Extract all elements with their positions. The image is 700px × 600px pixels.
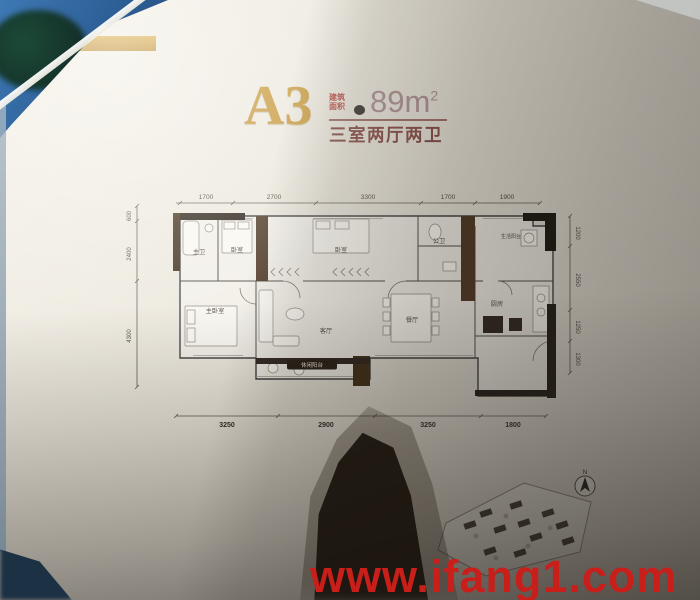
- floor-plan-drawing: 1700 2700 3300 1700 1900 3250 2900 3250 …: [123, 186, 583, 456]
- svg-text:600: 600: [127, 210, 133, 221]
- background-left-edge: [0, 104, 6, 552]
- dimension-labels-bottom: 3250 2900 3250 1800: [219, 422, 521, 429]
- room-label-living: 客厅: [320, 327, 332, 335]
- svg-text:3250: 3250: [219, 422, 235, 429]
- svg-text:1200: 1200: [574, 226, 580, 240]
- svg-text:4300: 4300: [127, 329, 133, 343]
- room-label-master-bedroom: 主卧室: [206, 307, 225, 315]
- svg-text:1900: 1900: [500, 194, 515, 201]
- svg-text:3250: 3250: [420, 422, 436, 429]
- room-label-bedroom-a: 卧室: [231, 246, 243, 254]
- area-value: 89m2: [370, 86, 438, 117]
- svg-text:1700: 1700: [199, 194, 214, 201]
- area-number: 89m: [370, 84, 430, 119]
- leisure-balcony-tag: 休闲阳台: [287, 360, 337, 370]
- svg-text:3300: 3300: [361, 194, 376, 201]
- svg-text:2900: 2900: [318, 422, 334, 429]
- svg-text:2700: 2700: [267, 194, 282, 201]
- plan-code-title: A3: [244, 78, 312, 134]
- room-label-kitchen: 厨房: [491, 300, 503, 308]
- room-label-second-bath: 公卫: [433, 238, 445, 245]
- svg-text:1250: 1250: [574, 320, 580, 334]
- floorplan-photo: A3 建筑 面积 89m2 三室两厅两卫 1700 2700: [0, 0, 700, 600]
- north-arrow-icon: N: [575, 469, 595, 496]
- room-label-bedroom-b: 卧室: [335, 246, 347, 254]
- background-bottom-left: [0, 545, 72, 600]
- room-label-master-bath: 主卫: [193, 248, 205, 256]
- watermark-url: www.ifang1.com: [310, 551, 677, 600]
- area-caption-line2: 面积: [329, 103, 345, 112]
- north-label: N: [583, 469, 588, 476]
- svg-text:2400: 2400: [127, 247, 133, 261]
- area-caption: 建筑 面积: [329, 94, 345, 111]
- background-top-left: [0, 0, 168, 138]
- svg-text:1800: 1800: [505, 422, 521, 429]
- title-underline: [329, 119, 447, 121]
- bullet-dot-icon: [354, 105, 365, 115]
- layout-subtitle: 三室两厅两卫: [329, 122, 443, 147]
- room-label-leisure-balcony: 休闲阳台: [301, 361, 324, 369]
- dimension-labels-top: 1700 2700 3300 1700 1900: [199, 194, 515, 201]
- room-label-utility-balcony: 生活阳台: [501, 233, 521, 240]
- svg-text:1300: 1300: [574, 352, 580, 366]
- room-label-dining: 餐厅: [406, 316, 418, 324]
- dimension-labels-right: 1200 2550 1250 1300: [574, 226, 580, 366]
- background-top-right: [636, 0, 700, 20]
- svg-text:1700: 1700: [441, 194, 456, 201]
- area-superscript: 2: [430, 88, 438, 104]
- dimension-labels-left: 600 2400 4300: [127, 210, 133, 342]
- svg-text:2550: 2550: [574, 273, 580, 287]
- gold-accent-bar: [38, 36, 156, 51]
- gold-accent-bar-edge: [0, 54, 34, 67]
